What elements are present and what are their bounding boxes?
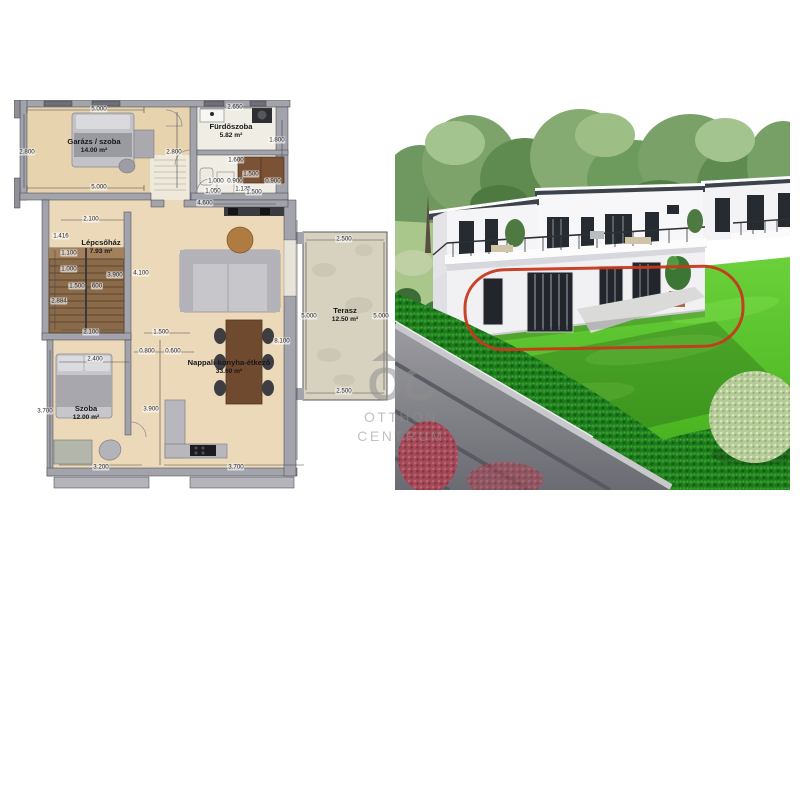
balcony-plant	[505, 219, 525, 247]
watermark: OC OTTHON CENTRUM	[356, 349, 446, 445]
watermark-line1: OTTHON	[356, 409, 446, 426]
listing-image: Garázs / szoba 14.00 m² Fürdőszoba 5.82 …	[0, 0, 800, 800]
watermark-logo: OC	[356, 349, 446, 407]
render-scene	[395, 95, 790, 490]
kitchen-cabinets	[224, 207, 284, 216]
staircase	[49, 248, 124, 333]
watermark-line2: CENTRUM	[356, 428, 446, 445]
house-render	[395, 95, 790, 490]
floor-plan-drawing	[14, 100, 390, 490]
roof-icon	[372, 351, 398, 361]
floor-plan: Garázs / szoba 14.00 m² Fürdőszoba 5.82 …	[14, 100, 390, 490]
watermark-logo-text: OC	[368, 358, 435, 410]
